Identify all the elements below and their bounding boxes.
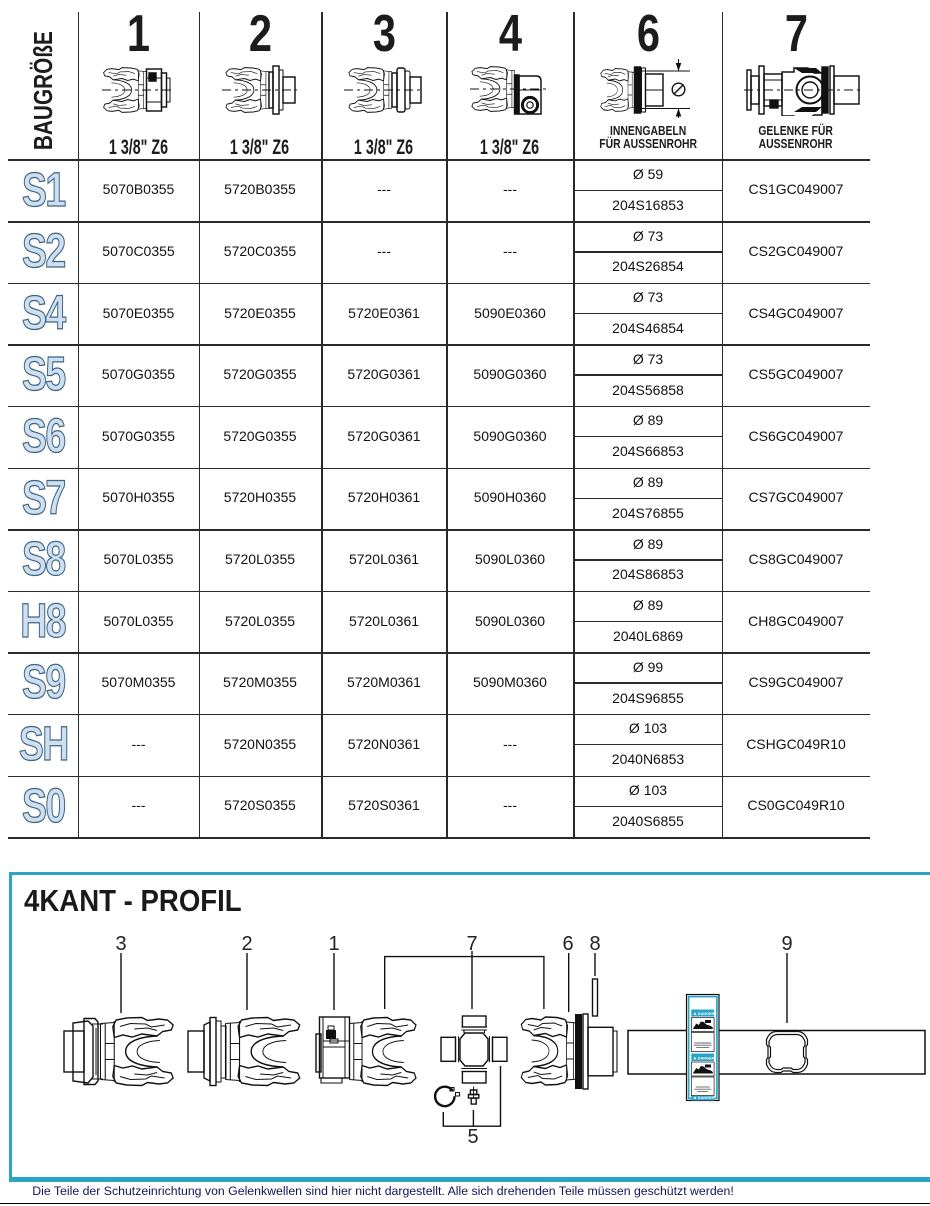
svg-text:3: 3: [115, 933, 126, 955]
svg-text:DANGER: DANGER: [698, 1096, 715, 1100]
svg-text:9: 9: [781, 933, 792, 955]
svg-text:DANGER: DANGER: [698, 1057, 715, 1061]
svg-text:5: 5: [467, 1126, 478, 1148]
svg-text:1: 1: [328, 933, 339, 955]
svg-text:6: 6: [562, 933, 573, 955]
svg-text:8: 8: [589, 933, 600, 955]
svg-text:2: 2: [241, 933, 252, 955]
svg-text:DANGER: DANGER: [698, 1012, 715, 1016]
